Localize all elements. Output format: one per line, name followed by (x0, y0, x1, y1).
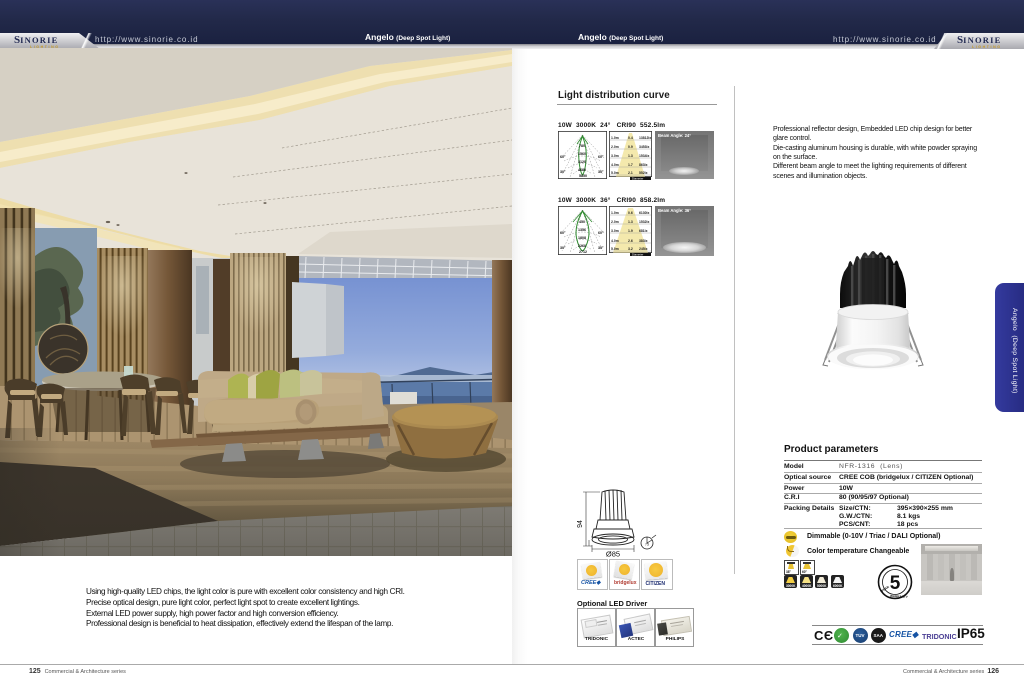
svg-text:0.9: 0.9 (628, 145, 633, 149)
svg-text:30°: 30° (598, 246, 604, 250)
svg-text:2260: 2260 (578, 244, 586, 248)
svg-text:681lx: 681lx (639, 229, 648, 233)
svg-text:0.4: 0.4 (628, 136, 633, 140)
svg-text:3.2: 3.2 (628, 247, 633, 251)
svg-text:1.9: 1.9 (628, 229, 633, 233)
svg-text:1532lx: 1532lx (639, 220, 649, 224)
svg-text:5.0m: 5.0m (611, 171, 619, 175)
svg-text:3.0m: 3.0m (611, 154, 619, 158)
svg-text:5: 5 (890, 573, 901, 594)
svg-text:1.3: 1.3 (628, 154, 633, 158)
svg-text:4.0m: 4.0m (611, 239, 619, 243)
svg-text:30°: 30° (560, 246, 566, 250)
svg-text:13812lx: 13812lx (639, 136, 651, 140)
svg-text:5.0m: 5.0m (611, 247, 619, 251)
svg-text:Diameter: Diameter (632, 177, 643, 180)
svg-text:Ø85: Ø85 (606, 550, 620, 559)
svg-text:383lx: 383lx (639, 239, 648, 243)
svg-text:1.0m: 1.0m (611, 136, 619, 140)
svg-text:30°: 30° (560, 170, 566, 174)
svg-text:3.0m: 3.0m (611, 229, 619, 233)
svg-text:Diameter: Diameter (632, 253, 643, 256)
svg-text:3120: 3120 (578, 160, 586, 164)
svg-text:1.0m: 1.0m (611, 211, 619, 215)
svg-text:2.1: 2.1 (628, 171, 633, 175)
svg-text:94: 94 (577, 520, 584, 528)
svg-text:863lx: 863lx (639, 163, 648, 167)
svg-text:2712: 2712 (579, 250, 587, 254)
svg-text:780: 780 (579, 144, 585, 148)
svg-text:5850: 5850 (579, 174, 587, 178)
svg-text:1534lx: 1534lx (639, 154, 649, 158)
svg-text:3453lx: 3453lx (639, 145, 649, 149)
svg-text:60°: 60° (598, 155, 604, 159)
svg-text:1356: 1356 (578, 228, 586, 232)
svg-text:2.0m: 2.0m (611, 145, 619, 149)
svg-text:60°: 60° (560, 155, 566, 159)
svg-text:2.0m: 2.0m (611, 220, 619, 224)
svg-text:30°: 30° (598, 170, 604, 174)
svg-text:245lx: 245lx (639, 247, 648, 251)
svg-text:4680: 4680 (578, 168, 586, 172)
svg-text:2.6: 2.6 (628, 239, 633, 243)
svg-text:75: 75 (645, 543, 649, 547)
svg-text:1560: 1560 (578, 152, 586, 156)
svg-text:1808: 1808 (578, 236, 586, 240)
svg-text:1.7: 1.7 (628, 163, 633, 167)
svg-text:6130lx: 6130lx (639, 211, 649, 215)
svg-text:60°: 60° (560, 231, 566, 235)
svg-text:4.0m: 4.0m (611, 163, 619, 167)
svg-text:450: 450 (579, 220, 585, 224)
svg-text:0.6: 0.6 (628, 211, 633, 215)
svg-text:1.3: 1.3 (628, 220, 633, 224)
svg-text:60°: 60° (598, 231, 604, 235)
svg-text:552lx: 552lx (639, 171, 648, 175)
